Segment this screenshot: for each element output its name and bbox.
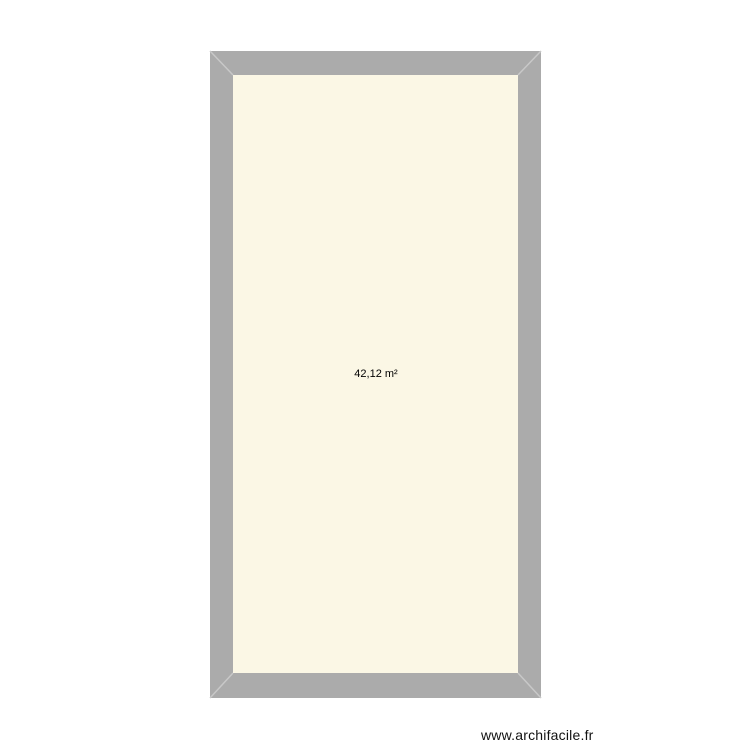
room-area-label: 42,12 m² — [354, 368, 397, 380]
floor-plan-canvas: 42,12 m² www.archifacile.fr — [0, 0, 750, 750]
watermark-text: www.archifacile.fr — [481, 727, 594, 743]
